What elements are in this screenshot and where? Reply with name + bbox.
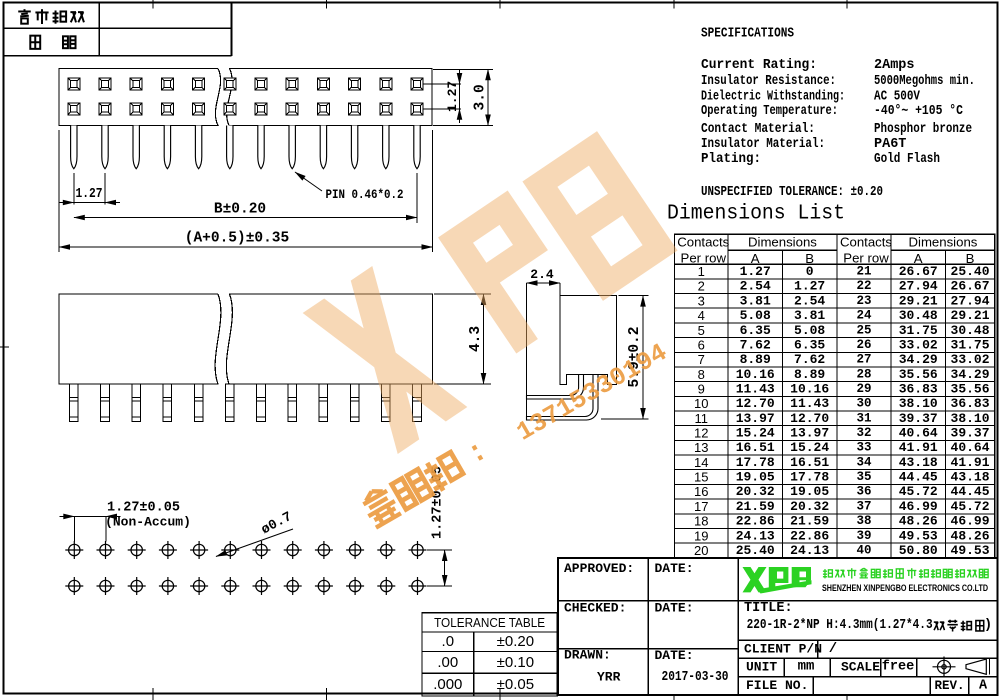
svg-text:DATE:: DATE:	[655, 561, 694, 576]
svg-text:39: 39	[856, 529, 871, 543]
svg-text:19.05: 19.05	[736, 470, 775, 485]
svg-text:2017-03-30: 2017-03-30	[662, 670, 729, 685]
svg-text:41.91: 41.91	[899, 440, 938, 455]
svg-text:48.26: 48.26	[951, 528, 990, 543]
svg-text:16.51: 16.51	[736, 440, 775, 455]
svg-text:6.35: 6.35	[740, 323, 771, 338]
svg-text:2Amps: 2Amps	[874, 58, 915, 73]
svg-text:7.62: 7.62	[794, 352, 825, 367]
svg-text:39.37: 39.37	[899, 411, 938, 426]
svg-text:14: 14	[694, 455, 708, 470]
svg-text:43.18: 43.18	[951, 470, 990, 485]
svg-text:Phosphor bronze: Phosphor bronze	[874, 122, 972, 137]
svg-text:17.78: 17.78	[790, 470, 829, 485]
svg-text:1.27±0.05: 1.27±0.05	[107, 501, 180, 516]
svg-text:21.59: 21.59	[736, 499, 775, 514]
svg-text:17.78: 17.78	[736, 455, 775, 470]
svg-text:SCALE: SCALE	[841, 660, 880, 675]
svg-text:TOLERANCE TABLE: TOLERANCE TABLE	[434, 615, 545, 630]
svg-text:35.56: 35.56	[899, 367, 938, 382]
svg-text:44.45: 44.45	[899, 470, 938, 485]
svg-text:.000: .000	[433, 676, 462, 693]
svg-text:UNSPECIFIED TOLERANCE: ±0.20: UNSPECIFIED TOLERANCE: ±0.20	[701, 185, 883, 200]
svg-text:40.64: 40.64	[951, 440, 990, 455]
svg-text:36.83: 36.83	[951, 396, 990, 411]
svg-text:1.27: 1.27	[445, 81, 460, 112]
svg-text:5000Megohms min.: 5000Megohms min.	[874, 74, 975, 89]
svg-text:15.24: 15.24	[736, 426, 775, 441]
svg-text:19: 19	[694, 528, 708, 543]
svg-text:8.89: 8.89	[740, 352, 771, 367]
svg-text:2.4: 2.4	[530, 267, 554, 282]
svg-text:21: 21	[856, 265, 871, 279]
svg-text:30.48: 30.48	[899, 308, 938, 323]
svg-text:4.3: 4.3	[468, 326, 484, 352]
svg-text:26.67: 26.67	[951, 279, 990, 294]
svg-text:Contacts: Contacts	[677, 235, 729, 250]
svg-text:26.67: 26.67	[899, 264, 938, 279]
svg-text:8: 8	[698, 367, 705, 382]
svg-text:26: 26	[856, 338, 871, 352]
svg-text:SPECIFICATIONS: SPECIFICATIONS	[701, 27, 794, 42]
svg-text:34.29: 34.29	[951, 367, 990, 382]
svg-text:49.53: 49.53	[899, 528, 938, 543]
svg-text:Current Rating:: Current Rating:	[701, 58, 817, 73]
svg-text:3.81: 3.81	[740, 293, 771, 308]
svg-text:30: 30	[856, 397, 871, 411]
svg-text:2.54: 2.54	[740, 279, 771, 294]
svg-text:25: 25	[856, 323, 871, 337]
svg-text:±0.20: ±0.20	[497, 633, 534, 650]
svg-text:30.48: 30.48	[951, 323, 990, 338]
svg-text:20: 20	[694, 543, 708, 558]
svg-text:24.13: 24.13	[736, 528, 775, 543]
svg-text:18: 18	[694, 514, 708, 529]
svg-text:29.21: 29.21	[899, 293, 938, 308]
svg-text:31: 31	[856, 411, 871, 425]
svg-text:48.26: 48.26	[899, 514, 938, 529]
svg-text:Insulator Material:: Insulator Material:	[701, 137, 825, 152]
svg-text:40.64: 40.64	[899, 426, 938, 441]
svg-text:43.18: 43.18	[899, 455, 938, 470]
svg-text:11.43: 11.43	[736, 381, 775, 396]
svg-text:3.81: 3.81	[794, 308, 825, 323]
svg-text:/: /	[829, 641, 837, 657]
svg-text:33: 33	[856, 441, 871, 455]
svg-text:Operating Temperature:: Operating Temperature:	[701, 104, 838, 119]
svg-text:A: A	[979, 679, 988, 694]
svg-text:9: 9	[698, 381, 705, 396]
svg-text:36.83: 36.83	[899, 381, 938, 396]
svg-text:10.16: 10.16	[790, 381, 829, 396]
svg-text:39.37: 39.37	[951, 426, 990, 441]
svg-text:4: 4	[698, 308, 705, 323]
svg-text:23: 23	[856, 294, 871, 308]
svg-text:Dimensions: Dimensions	[748, 235, 817, 250]
svg-text:AC 500V: AC 500V	[874, 90, 921, 105]
svg-text:5: 5	[698, 323, 705, 338]
svg-text:46.99: 46.99	[899, 499, 938, 514]
svg-text:Contact Material:: Contact Material:	[701, 122, 815, 137]
svg-text:1: 1	[698, 264, 705, 279]
svg-text:27.94: 27.94	[899, 279, 938, 294]
svg-text:16: 16	[694, 484, 708, 499]
svg-text:Gold Flash: Gold Flash	[874, 152, 940, 167]
svg-text:Dimensions: Dimensions	[908, 235, 977, 250]
svg-text:YRR: YRR	[597, 670, 621, 685]
svg-text:Plating:: Plating:	[701, 152, 761, 167]
svg-text:DATE:: DATE:	[655, 648, 694, 663]
svg-text:33.02: 33.02	[899, 337, 938, 352]
svg-text:40: 40	[856, 543, 871, 557]
svg-text:SHENZHEN XINPENGBO ELECTRONICS: SHENZHEN XINPENGBO ELECTRONICS CO.LTD	[822, 583, 988, 594]
svg-text:27.94: 27.94	[951, 293, 990, 308]
svg-text:12.70: 12.70	[790, 411, 829, 426]
svg-text:-40°∼ +105 °C: -40°∼ +105 °C	[874, 104, 963, 119]
svg-text:22.86: 22.86	[790, 528, 829, 543]
svg-text:1.27: 1.27	[740, 264, 771, 279]
svg-text:22.86: 22.86	[736, 514, 775, 529]
svg-text:41.91: 41.91	[951, 455, 990, 470]
svg-text:8.89: 8.89	[794, 367, 825, 382]
svg-text:B±0.20: B±0.20	[214, 202, 266, 218]
svg-text:3.0: 3.0	[473, 84, 489, 110]
svg-text:(A+0.5)±0.35: (A+0.5)±0.35	[185, 231, 289, 247]
svg-text:34.29: 34.29	[899, 352, 938, 367]
svg-text:PIN 0.46*0.2: PIN 0.46*0.2	[326, 187, 404, 202]
svg-text:25.40: 25.40	[736, 543, 775, 558]
svg-text:17: 17	[694, 499, 708, 514]
svg-text:(Non-Accum): (Non-Accum)	[105, 514, 191, 529]
svg-text:22: 22	[856, 279, 871, 293]
svg-text:Dimensions List: Dimensions List	[667, 203, 845, 226]
svg-text:35: 35	[856, 470, 871, 484]
svg-text:5.08: 5.08	[740, 308, 771, 323]
svg-text:11: 11	[695, 411, 709, 426]
svg-text:24: 24	[856, 309, 872, 323]
svg-text:.0: .0	[442, 633, 455, 650]
svg-text:DATE:: DATE:	[655, 601, 694, 616]
svg-text:10: 10	[694, 396, 708, 411]
svg-text:Contacts: Contacts	[840, 235, 892, 250]
svg-text:21.59: 21.59	[790, 514, 829, 529]
svg-text:1.27: 1.27	[794, 279, 825, 294]
svg-text:mm: mm	[798, 659, 815, 675]
svg-text:Insulator Resistance:: Insulator Resistance:	[701, 74, 836, 89]
svg-text:46.99: 46.99	[951, 514, 990, 529]
svg-text:13: 13	[694, 440, 708, 455]
svg-text:38.10: 38.10	[951, 411, 990, 426]
svg-text:16.51: 16.51	[790, 455, 829, 470]
svg-text:12.70: 12.70	[736, 396, 775, 411]
svg-text:28: 28	[856, 367, 871, 381]
svg-text:±0.10: ±0.10	[497, 654, 534, 671]
svg-text:Dielectric Withstanding:: Dielectric Withstanding:	[701, 90, 845, 105]
svg-text:PA6T: PA6T	[874, 137, 906, 152]
svg-text:20.32: 20.32	[790, 499, 829, 514]
svg-text:220-1R-2*NP H:4.3mm(1.27*4.3: 220-1R-2*NP H:4.3mm(1.27*4.3	[747, 618, 933, 633]
svg-text:50.80: 50.80	[899, 543, 938, 558]
svg-text:6: 6	[698, 337, 705, 352]
svg-text:REV.: REV.	[934, 679, 964, 693]
svg-text:1.27: 1.27	[76, 187, 103, 202]
svg-text:CHECKED:: CHECKED:	[564, 601, 626, 616]
svg-text:CLIENT P/N: CLIENT P/N	[744, 642, 822, 657]
svg-text:45.72: 45.72	[899, 484, 938, 499]
svg-text:19.05: 19.05	[790, 484, 829, 499]
svg-text:UNIT: UNIT	[746, 660, 777, 675]
svg-text:35.56: 35.56	[951, 381, 990, 396]
svg-text:20.32: 20.32	[736, 484, 775, 499]
svg-text:31.75: 31.75	[899, 323, 938, 338]
svg-text:free: free	[882, 660, 914, 675]
svg-text:13.97: 13.97	[736, 411, 775, 426]
svg-text:DRAWN:: DRAWN:	[564, 648, 611, 663]
svg-text:11.43: 11.43	[790, 396, 829, 411]
svg-text:32: 32	[856, 426, 871, 440]
svg-text:2.54: 2.54	[794, 293, 825, 308]
svg-text:29.21: 29.21	[951, 308, 990, 323]
svg-text:36: 36	[856, 485, 871, 499]
svg-text:7.62: 7.62	[740, 337, 771, 352]
svg-text:45.72: 45.72	[951, 499, 990, 514]
svg-text:7: 7	[698, 352, 705, 367]
svg-text:±0.05: ±0.05	[497, 676, 534, 693]
svg-text:24.13: 24.13	[790, 543, 829, 558]
svg-text:37: 37	[856, 499, 871, 513]
svg-text:44.45: 44.45	[951, 484, 990, 499]
svg-text:13.97: 13.97	[790, 426, 829, 441]
svg-text:Per row: Per row	[843, 251, 889, 266]
svg-text:APPROVED:: APPROVED:	[564, 561, 634, 576]
svg-text:27: 27	[856, 353, 871, 367]
svg-text:31.75: 31.75	[951, 337, 990, 352]
svg-text:25.40: 25.40	[951, 264, 990, 279]
svg-text:33.02: 33.02	[951, 352, 990, 367]
svg-text:5.08: 5.08	[794, 323, 825, 338]
svg-text:10.16: 10.16	[736, 367, 775, 382]
svg-text:6.35: 6.35	[794, 337, 825, 352]
svg-text:0: 0	[806, 264, 814, 279]
svg-text:): )	[984, 618, 992, 633]
svg-text:49.53: 49.53	[951, 543, 990, 558]
svg-text:15: 15	[694, 470, 708, 485]
svg-text:.00: .00	[437, 654, 458, 671]
svg-text:29: 29	[856, 382, 871, 396]
svg-text:38: 38	[856, 514, 871, 528]
svg-text:3: 3	[698, 293, 705, 308]
svg-text:15.24: 15.24	[790, 440, 829, 455]
svg-text:12: 12	[694, 426, 708, 441]
svg-text:34: 34	[856, 455, 872, 469]
svg-text:FILE NO.: FILE NO.	[746, 678, 808, 693]
svg-text:2: 2	[698, 279, 705, 294]
svg-text:TITLE:: TITLE:	[744, 601, 793, 616]
svg-text:38.10: 38.10	[899, 396, 938, 411]
